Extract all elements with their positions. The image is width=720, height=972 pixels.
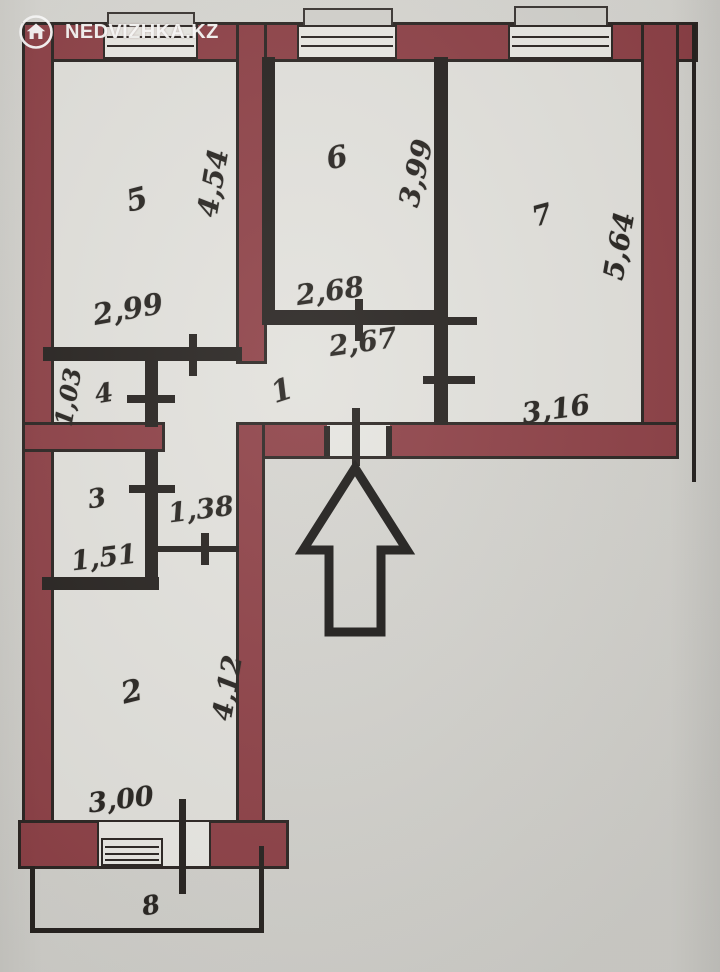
door-tick-room5 (189, 334, 197, 376)
entrance-jamb-left (324, 426, 330, 456)
door-tick-room7-top (419, 317, 477, 325)
door-tick-room3 (129, 485, 175, 493)
watermark-brand-text: NEDVIZHKA.KZ (65, 21, 219, 44)
wall-below-room4 (22, 422, 165, 452)
watermark: NEDVIZHKA.KZ (16, 12, 219, 52)
wall-room4-right (145, 361, 158, 427)
entrance-arrow-icon (290, 455, 420, 645)
window-room6 (297, 25, 397, 59)
wall-room3-bottom (42, 577, 159, 590)
balcony-door-block (97, 822, 211, 868)
door-tick-room7-bottom (423, 376, 475, 384)
wall-right-room2 (236, 422, 265, 852)
window-room7 (508, 25, 613, 59)
room-8-number: 8 (139, 890, 162, 923)
door-tick-room4 (127, 395, 175, 403)
wall-bottom-hallway (236, 422, 679, 459)
balcony-bottom-line (30, 928, 264, 933)
door-tick-corridor (201, 533, 209, 565)
wall-room7-left (434, 57, 448, 425)
window-sill-room7 (514, 6, 608, 27)
wall-room3-right (145, 450, 158, 590)
corridor-door-line (157, 546, 239, 552)
balcony-right-line (259, 846, 264, 933)
wall-room5-bottom (43, 347, 242, 361)
balcony-left-line (30, 866, 35, 932)
building-edge-line (692, 24, 696, 482)
house-icon (16, 12, 56, 52)
wall-right-room7 (641, 22, 679, 459)
entrance-jamb-right (386, 426, 392, 456)
wall-room6-left (262, 57, 275, 317)
floorplan-photo: 5 2,99 4,54 6 3,99 2,68 2,67 7 5,64 3,16… (0, 0, 720, 972)
balcony-door-leaf (179, 799, 186, 894)
